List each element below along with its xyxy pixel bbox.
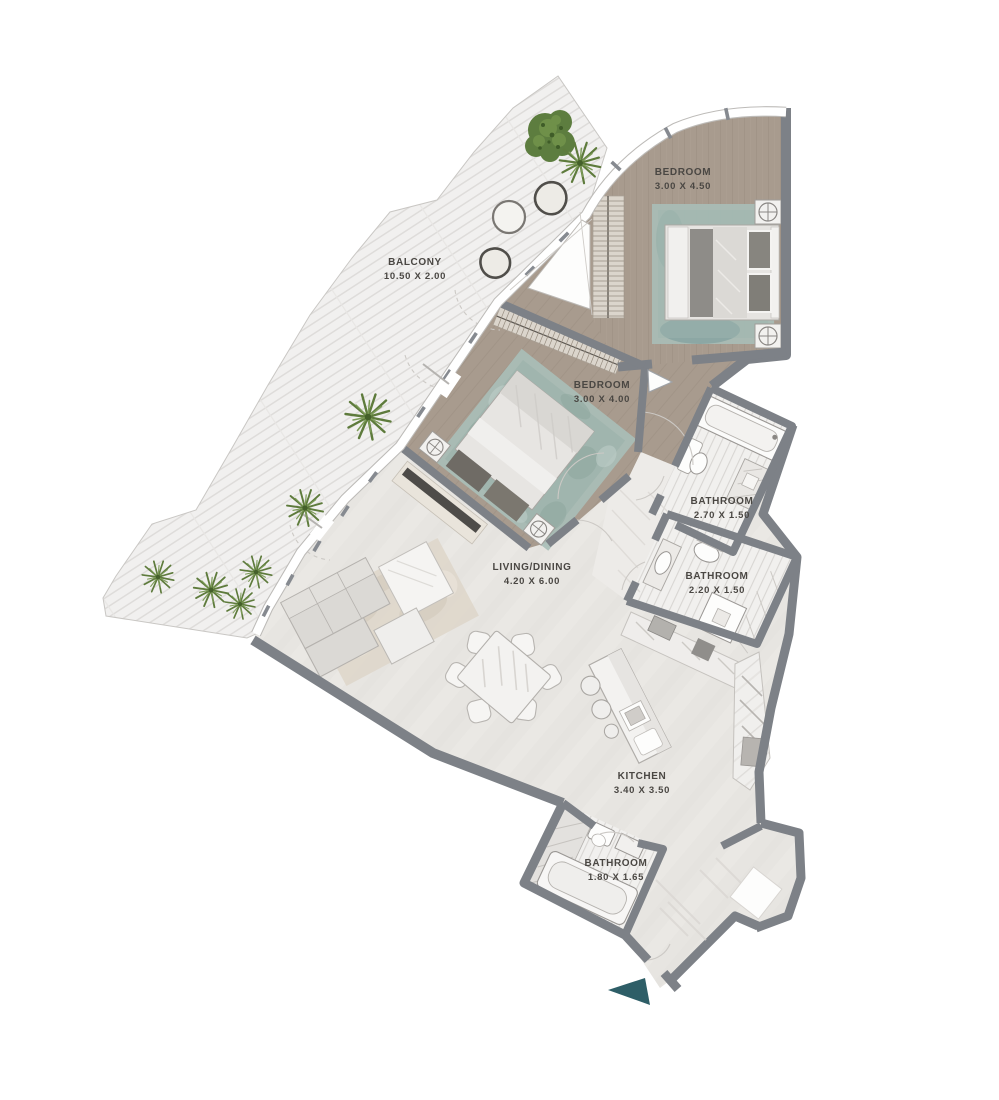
svg-text:BATHROOM: BATHROOM [585,858,648,869]
svg-text:10.50 X 2.00: 10.50 X 2.00 [384,271,446,282]
svg-text:LIVING/DINING: LIVING/DINING [493,562,572,573]
svg-text:1.80 X 1.65: 1.80 X 1.65 [588,872,644,883]
svg-text:BATHROOM: BATHROOM [686,571,749,582]
svg-text:2.70 X 1.50: 2.70 X 1.50 [694,510,750,521]
svg-text:4.20 X 6.00: 4.20 X 6.00 [504,576,560,587]
svg-text:3.40 X 3.50: 3.40 X 3.50 [614,785,670,796]
svg-text:2.20 X 1.50: 2.20 X 1.50 [689,585,745,596]
svg-text:3.00 X 4.50: 3.00 X 4.50 [655,181,711,192]
svg-text:BEDROOM: BEDROOM [655,167,711,178]
svg-text:KITCHEN: KITCHEN [618,771,667,782]
svg-text:BATHROOM: BATHROOM [691,496,754,507]
svg-text:BALCONY: BALCONY [388,257,442,268]
svg-text:BEDROOM: BEDROOM [574,380,630,391]
svg-text:3.00 X 4.00: 3.00 X 4.00 [574,394,630,405]
